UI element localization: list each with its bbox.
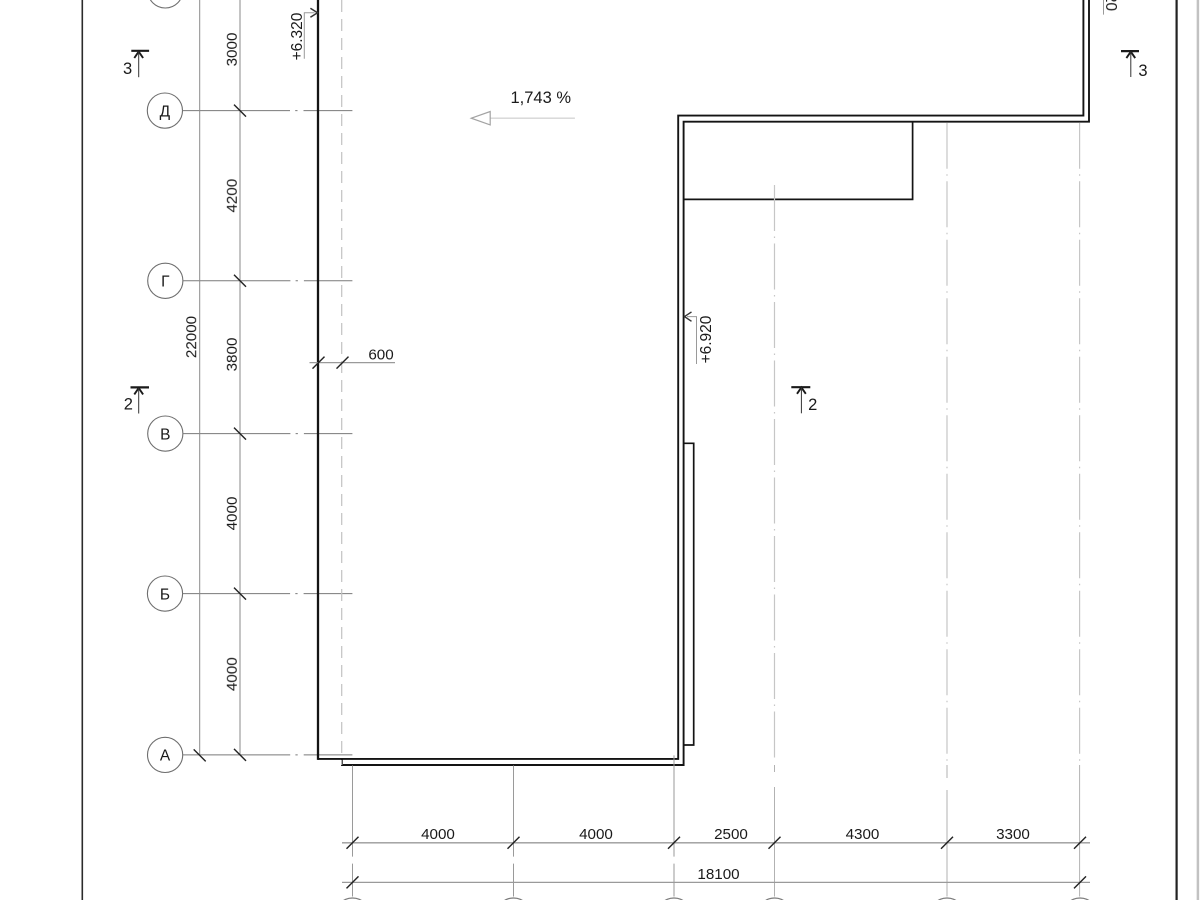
svg-text:3300: 3300 (996, 826, 1030, 843)
svg-text:А: А (160, 748, 171, 765)
svg-text:22000: 22000 (183, 316, 200, 358)
svg-text:3800: 3800 (224, 338, 241, 372)
svg-text:2: 2 (124, 396, 133, 414)
svg-text:3000: 3000 (224, 33, 241, 67)
svg-text:1,743 %: 1,743 % (511, 89, 572, 107)
svg-text:Г: Г (161, 274, 170, 291)
svg-text:4000: 4000 (579, 826, 613, 843)
svg-text:В: В (160, 426, 170, 443)
svg-text:4000: 4000 (421, 826, 455, 843)
svg-text:600: 600 (368, 346, 393, 363)
svg-text:18100: 18100 (697, 866, 739, 883)
svg-text:+6.320: +6.320 (289, 12, 306, 60)
svg-text:4200: 4200 (224, 179, 241, 213)
svg-text:4000: 4000 (224, 497, 241, 531)
svg-text:4000: 4000 (224, 657, 241, 691)
svg-text:Б: Б (160, 586, 170, 603)
svg-text:2500: 2500 (714, 826, 748, 843)
svg-text:4300: 4300 (846, 826, 880, 843)
svg-text:+6.920: +6.920 (698, 315, 715, 363)
svg-text:3: 3 (1138, 62, 1147, 80)
svg-text:2: 2 (808, 396, 817, 414)
svg-text:+6.320: +6.320 (1102, 0, 1119, 11)
svg-text:Д: Д (160, 103, 171, 120)
svg-text:3: 3 (123, 60, 132, 78)
